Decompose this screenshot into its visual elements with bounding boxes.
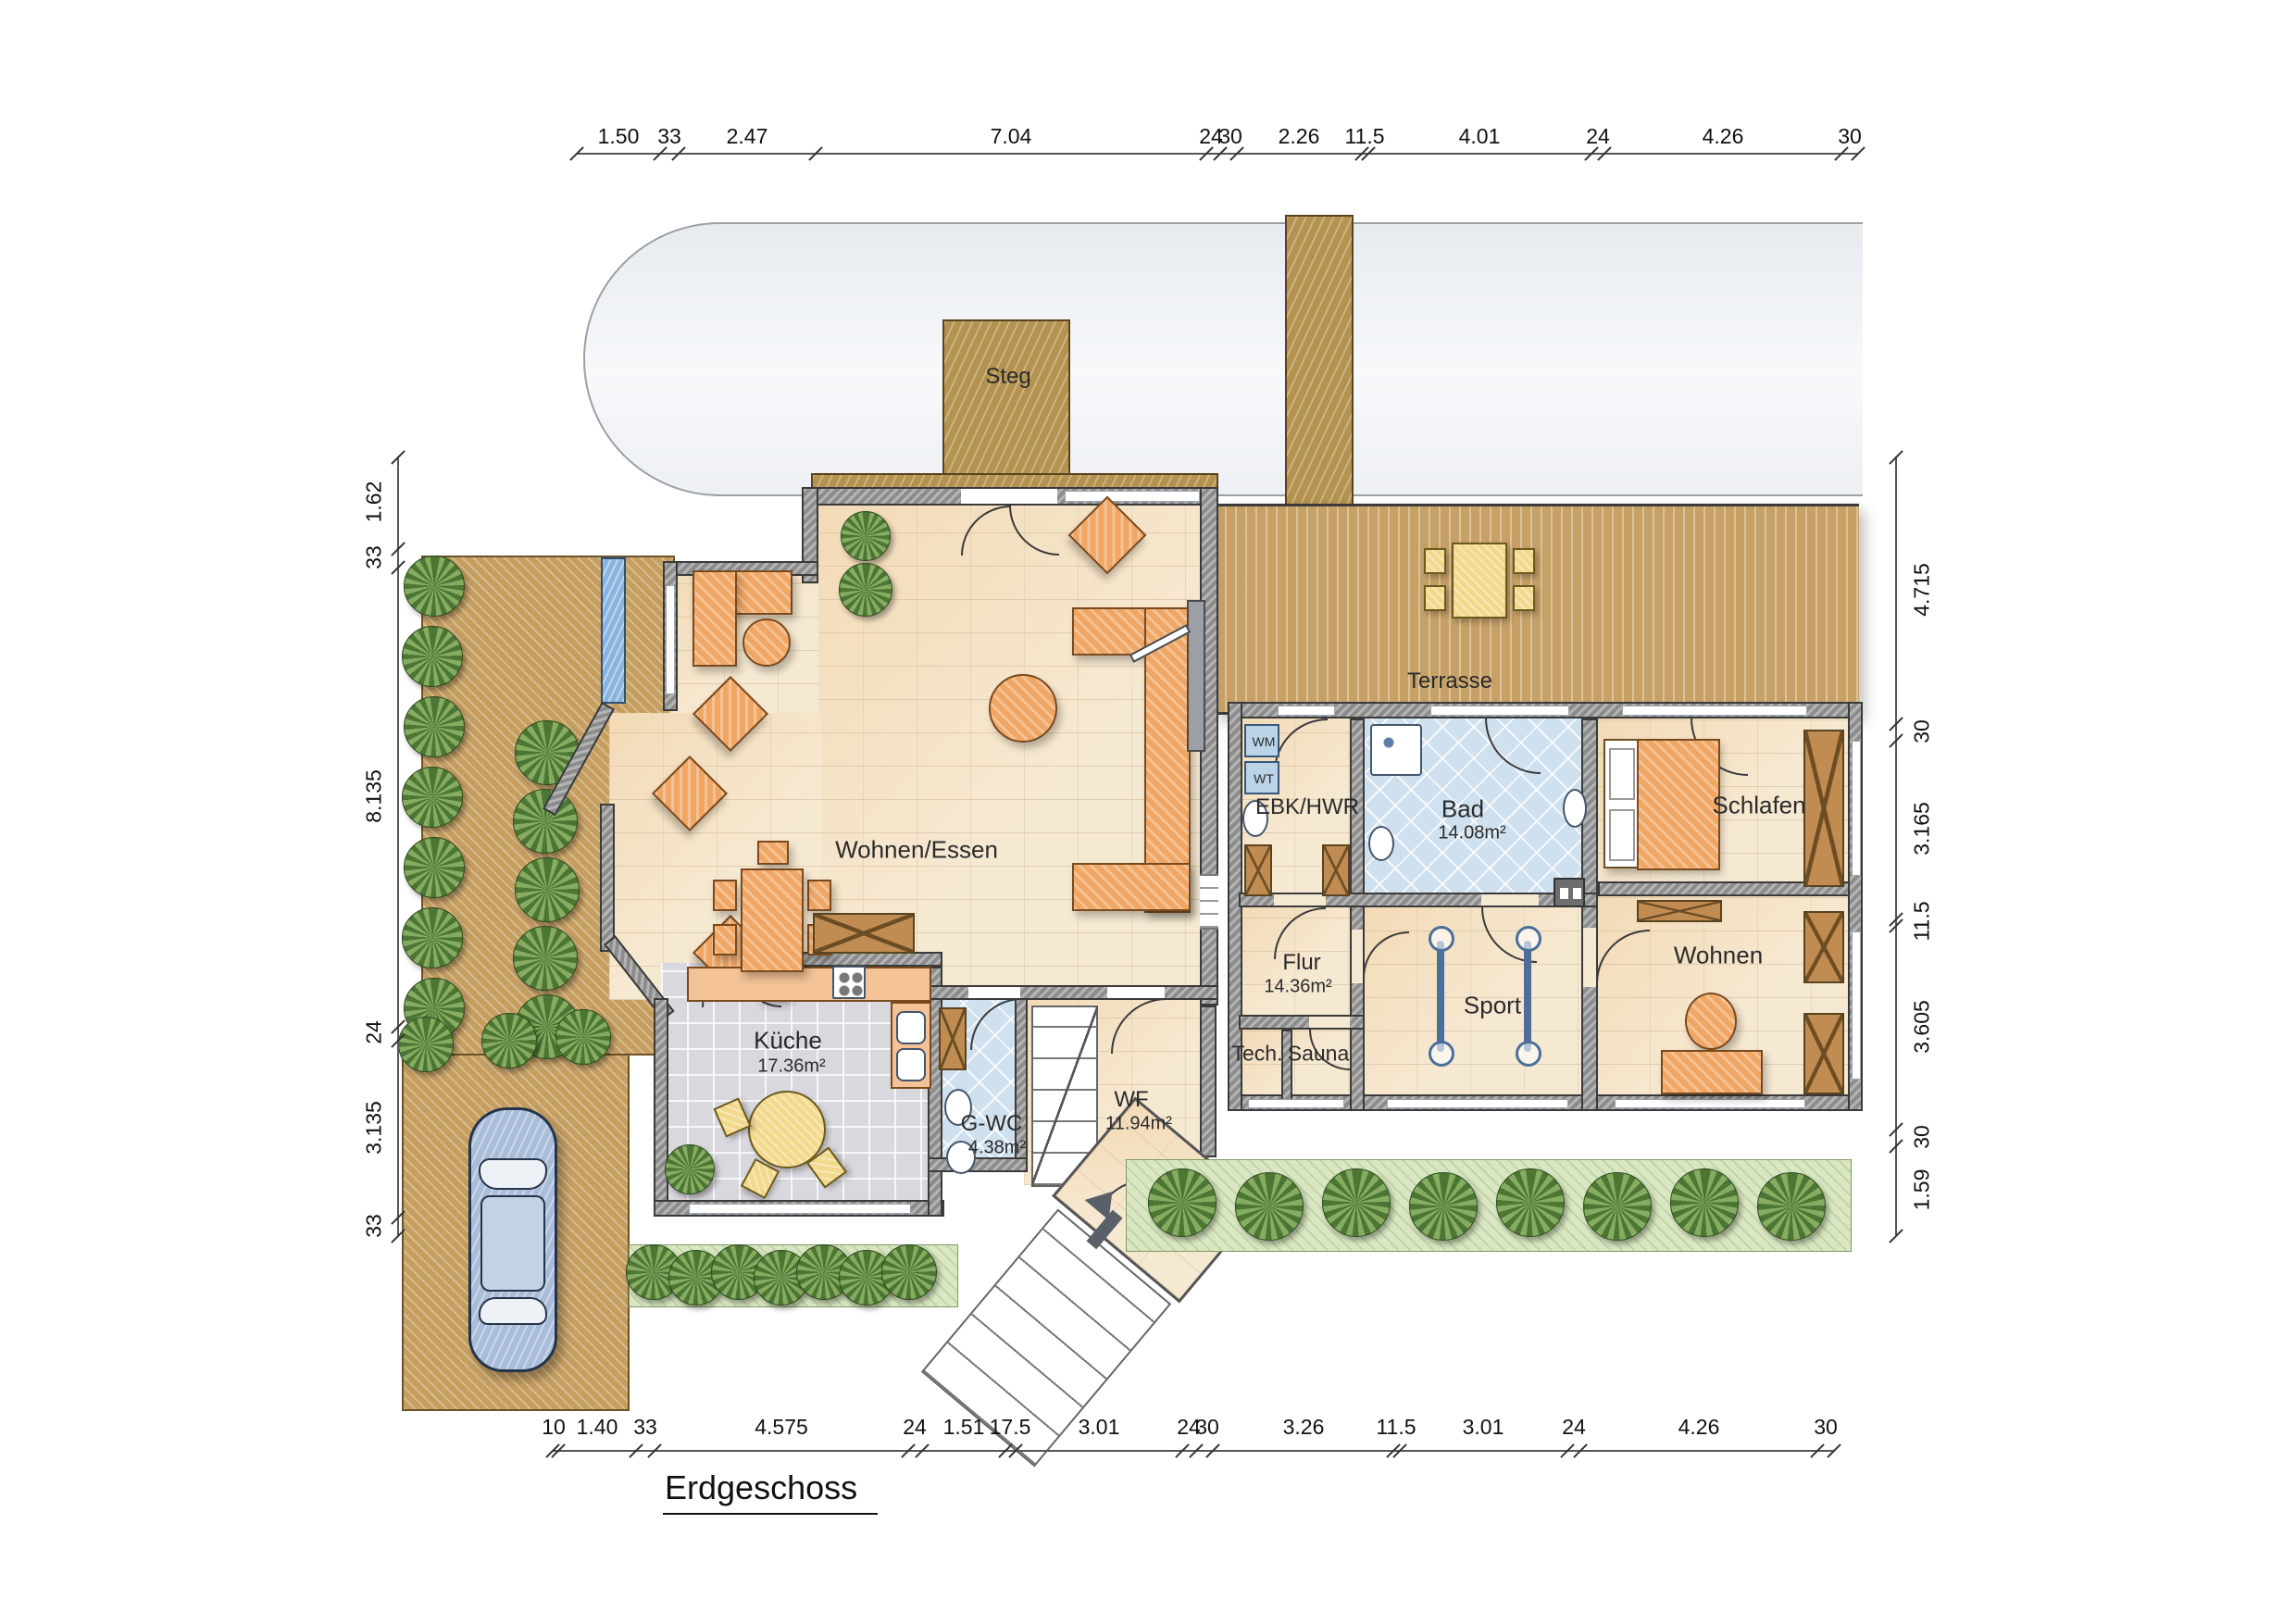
- dining-chair: [757, 841, 789, 865]
- wardrobe: [1244, 844, 1272, 896]
- window: [1065, 491, 1200, 502]
- dining-chair: [713, 924, 737, 956]
- window: [1248, 1099, 1344, 1108]
- dim-label: 8.135: [362, 769, 387, 823]
- car: [468, 1107, 557, 1372]
- double-bed: [1603, 739, 1718, 868]
- window: [666, 585, 675, 694]
- indoor-plant: [665, 1144, 715, 1194]
- kitchen-sink: [896, 1048, 926, 1081]
- bush: [555, 1009, 611, 1065]
- sofa-u-bottom: [1072, 863, 1191, 911]
- dim-label: 30: [1814, 1415, 1838, 1440]
- dim-label: 4.01: [1459, 124, 1501, 149]
- room-label-ebk: EBK/HWR: [1255, 794, 1359, 820]
- room-label-sport: Sport: [1464, 992, 1521, 1020]
- terrace-chair: [1513, 548, 1535, 574]
- dim-label: 30: [1195, 1415, 1219, 1440]
- dim-label: 11.5: [1376, 1415, 1416, 1440]
- hedge-bush: [1757, 1172, 1826, 1241]
- corner-sofa: [693, 570, 737, 667]
- dim-label: 1.62: [362, 481, 387, 523]
- dim-label: 11.5: [1344, 124, 1384, 149]
- bed-duvet: [1637, 739, 1720, 870]
- wardrobe: [1803, 1013, 1844, 1094]
- dim-label: 1.59: [1910, 1169, 1935, 1211]
- dim-label: 33: [362, 545, 387, 569]
- vent-block: [1554, 878, 1585, 907]
- room-area-bad: 14.08m²: [1438, 823, 1505, 844]
- door-opening: [1274, 894, 1326, 906]
- room-area-gwc: 4.38m²: [968, 1138, 1026, 1159]
- dim-label: 30: [1910, 1125, 1935, 1149]
- hedge-bush: [404, 556, 465, 617]
- door-opening: [1107, 987, 1165, 998]
- door-opening: [1352, 930, 1363, 983]
- dim-label: 10: [542, 1415, 566, 1440]
- dim-label: 4.715: [1910, 563, 1935, 617]
- room-label-wf: WF: [1114, 1087, 1148, 1113]
- terrace-table: [1452, 543, 1507, 618]
- hedge-bush: [515, 857, 580, 922]
- sideboard: [813, 913, 915, 954]
- dim-label: 30: [1910, 719, 1935, 743]
- door-opening: [1481, 894, 1539, 906]
- dim-label: 24: [1586, 124, 1610, 149]
- room-area-kueche: 17.36m²: [757, 1056, 825, 1078]
- room-label-wohnen-essen: Wohnen/Essen: [835, 836, 998, 865]
- hedge-bush: [1670, 1168, 1739, 1237]
- dim-label: 4.575: [755, 1415, 808, 1440]
- dim-label: 17.5: [990, 1415, 1031, 1440]
- room-area-wf: 11.94m²: [1105, 1114, 1172, 1135]
- exercise-bike-icon: [1437, 941, 1444, 1052]
- cooktop: [832, 966, 866, 999]
- dining-chair: [713, 880, 737, 911]
- hedge-bush: [404, 837, 465, 898]
- dim-label: 7.04: [991, 124, 1032, 149]
- terrace-chair: [1424, 585, 1446, 611]
- lake-water: [583, 222, 1863, 496]
- round-side-table: [742, 618, 791, 667]
- dim-label: 33: [362, 1214, 387, 1238]
- terrasse-label: Terrasse: [1407, 668, 1492, 694]
- window: [1615, 1099, 1805, 1108]
- room-label-bad: Bad: [1441, 795, 1484, 824]
- pier-walkway-right: [1285, 215, 1354, 509]
- hedge-bush: [402, 626, 463, 687]
- hedge-bush: [1496, 1168, 1565, 1237]
- bush: [481, 1013, 537, 1068]
- kitchen-counter: [687, 967, 931, 1002]
- terrace-chair: [1513, 585, 1535, 611]
- wardrobe: [939, 1007, 967, 1070]
- hedge-bush: [881, 1244, 937, 1300]
- door-opening: [961, 489, 1057, 504]
- page-title: Erdgeschoss: [663, 1468, 878, 1515]
- wall: [1350, 718, 1365, 1111]
- bed-pillow: [1609, 748, 1635, 800]
- room-label-wohnen-wing: Wohnen: [1674, 942, 1763, 970]
- hedge-bush: [513, 789, 578, 854]
- wall: [654, 998, 668, 1217]
- wt-label: WT: [1254, 771, 1274, 786]
- dim-label: 4.26: [1703, 124, 1744, 149]
- wall: [928, 1157, 1028, 1172]
- dim-label: 1.50: [598, 124, 640, 149]
- door-opening: [1309, 1017, 1350, 1028]
- wardrobe: [1322, 844, 1350, 896]
- hedge-bush: [1583, 1172, 1652, 1241]
- water-feature: [601, 557, 626, 704]
- dim-label: 24: [362, 1020, 387, 1044]
- hedge-bush: [402, 767, 463, 828]
- room-label-gwc: G-WC: [961, 1111, 1023, 1137]
- hedge-bush: [1148, 1168, 1217, 1237]
- sideboard: [1637, 900, 1722, 922]
- window: [1852, 741, 1861, 876]
- dim-label: 30: [1218, 124, 1242, 149]
- car-windshield: [479, 1158, 547, 1190]
- coffee-table-round: [989, 674, 1057, 743]
- hedge-bush: [1409, 1172, 1478, 1241]
- bed-pillow: [1609, 809, 1635, 861]
- room-label-schlafen: Schlafen: [1712, 792, 1805, 820]
- dining-chair: [807, 880, 831, 911]
- dim-label: 24: [903, 1415, 927, 1440]
- steg-label: Steg: [985, 364, 1030, 390]
- dim-label: 3.26: [1283, 1415, 1325, 1440]
- wall: [1581, 718, 1598, 1111]
- dim-label: 1.40: [577, 1415, 618, 1440]
- dim-line-right: [1895, 456, 1897, 1235]
- hedge-bush: [402, 907, 463, 968]
- exercise-bike-icon: [1524, 941, 1531, 1052]
- room-label-tech: Tech.: [1232, 1042, 1283, 1067]
- dim-label: 4.26: [1678, 1415, 1720, 1440]
- window: [1387, 1099, 1568, 1108]
- dim-label: 2.47: [727, 124, 768, 149]
- hedge-bush: [513, 926, 578, 991]
- door-opening: [968, 987, 1020, 998]
- dim-line-left: [397, 456, 399, 1235]
- window: [689, 1204, 911, 1214]
- dim-label: 33: [633, 1415, 657, 1440]
- wall: [600, 804, 615, 952]
- dim-label: 3.01: [1463, 1415, 1504, 1440]
- window: [1622, 706, 1807, 716]
- bush: [398, 1017, 454, 1072]
- window: [1430, 706, 1569, 716]
- toilet: [1368, 826, 1394, 861]
- dryer: WT: [1244, 761, 1279, 794]
- room-label-kueche: Küche: [754, 1027, 822, 1056]
- dim-label: 30: [1838, 124, 1862, 149]
- hedge-bush: [404, 696, 465, 757]
- wardrobe: [1803, 911, 1844, 983]
- dim-label: 3.165: [1910, 802, 1935, 856]
- door-opening: [1583, 928, 1596, 987]
- wall: [1200, 1006, 1217, 1157]
- hedge-bush: [1322, 1168, 1391, 1237]
- dim-label: 3.01: [1079, 1415, 1120, 1440]
- shower: [1370, 724, 1422, 776]
- room-label-flur: Flur: [1282, 950, 1320, 976]
- window: [1278, 706, 1335, 716]
- terrace-chair: [1424, 548, 1446, 574]
- wardrobe: [1803, 730, 1844, 887]
- dim-label: 1.51: [943, 1415, 985, 1440]
- round-table: [1685, 993, 1737, 1050]
- car-rear-window: [479, 1297, 547, 1325]
- car-roof: [480, 1195, 545, 1292]
- dim-label: 2.26: [1279, 124, 1320, 149]
- hedge-bush: [1235, 1172, 1304, 1241]
- dim-label: 3.605: [1910, 1000, 1935, 1054]
- passage-steps: [1200, 874, 1218, 930]
- tv-wall: [1187, 600, 1205, 752]
- wm-label: WM: [1253, 734, 1276, 749]
- dim-label: 24: [1562, 1415, 1586, 1440]
- room-area-flur: 14.36m²: [1264, 977, 1331, 998]
- dining-table: [741, 868, 804, 972]
- dim-label: 11.5: [1910, 901, 1935, 941]
- dim-label: 33: [657, 124, 681, 149]
- kitchen-sink: [896, 1011, 926, 1044]
- indoor-plant: [839, 563, 892, 617]
- bath-basin: [1563, 789, 1587, 828]
- dim-label: 3.135: [362, 1101, 387, 1155]
- sofa: [1661, 1050, 1763, 1094]
- room-label-sauna: Sauna: [1288, 1042, 1350, 1067]
- washing-machine: WM: [1244, 724, 1279, 757]
- window: [1852, 931, 1861, 1080]
- terrasse-deck: [1215, 504, 1859, 715]
- indoor-plant: [841, 511, 891, 561]
- floor-plan-canvas: Steg Terrasse: [0, 0, 2296, 1624]
